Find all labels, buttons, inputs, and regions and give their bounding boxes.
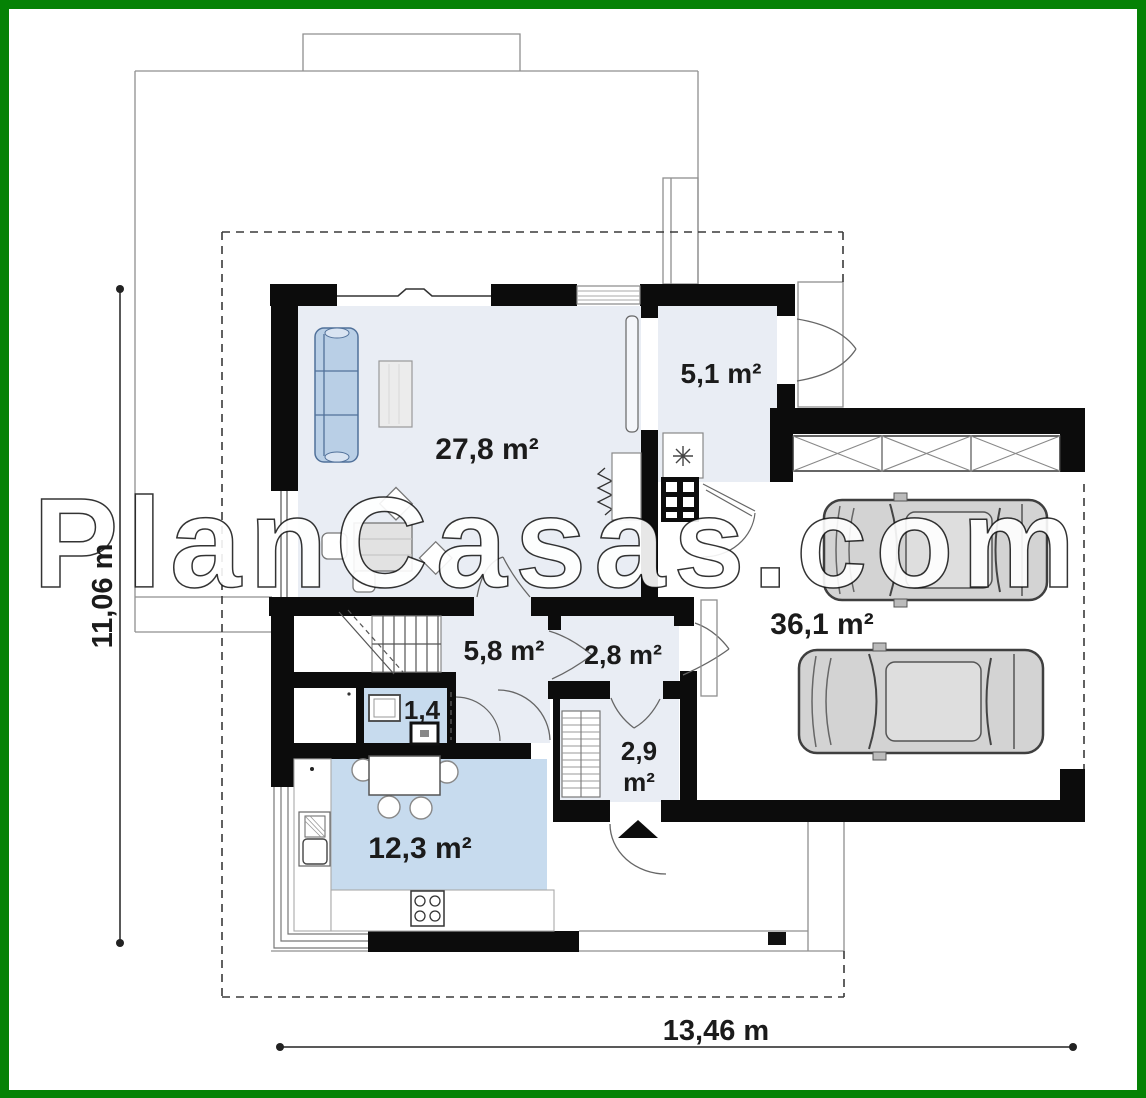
svg-text:11,06 m: 11,06 m bbox=[87, 544, 119, 649]
svg-text:27,8 m²: 27,8 m² bbox=[435, 433, 538, 466]
svg-text:m²: m² bbox=[623, 767, 655, 797]
svg-text:12,3 m²: 12,3 m² bbox=[368, 832, 471, 865]
svg-text:13,46 m: 13,46 m bbox=[663, 1015, 769, 1047]
svg-text:2,9: 2,9 bbox=[621, 736, 657, 766]
svg-text:5,1 m²: 5,1 m² bbox=[681, 358, 762, 389]
svg-text:PlanCasas.com: PlanCasas.com bbox=[33, 472, 1083, 615]
svg-text:5,8 m²: 5,8 m² bbox=[464, 635, 545, 666]
svg-text:1,4: 1,4 bbox=[404, 695, 441, 725]
svg-text:2,8 m²: 2,8 m² bbox=[584, 640, 662, 670]
